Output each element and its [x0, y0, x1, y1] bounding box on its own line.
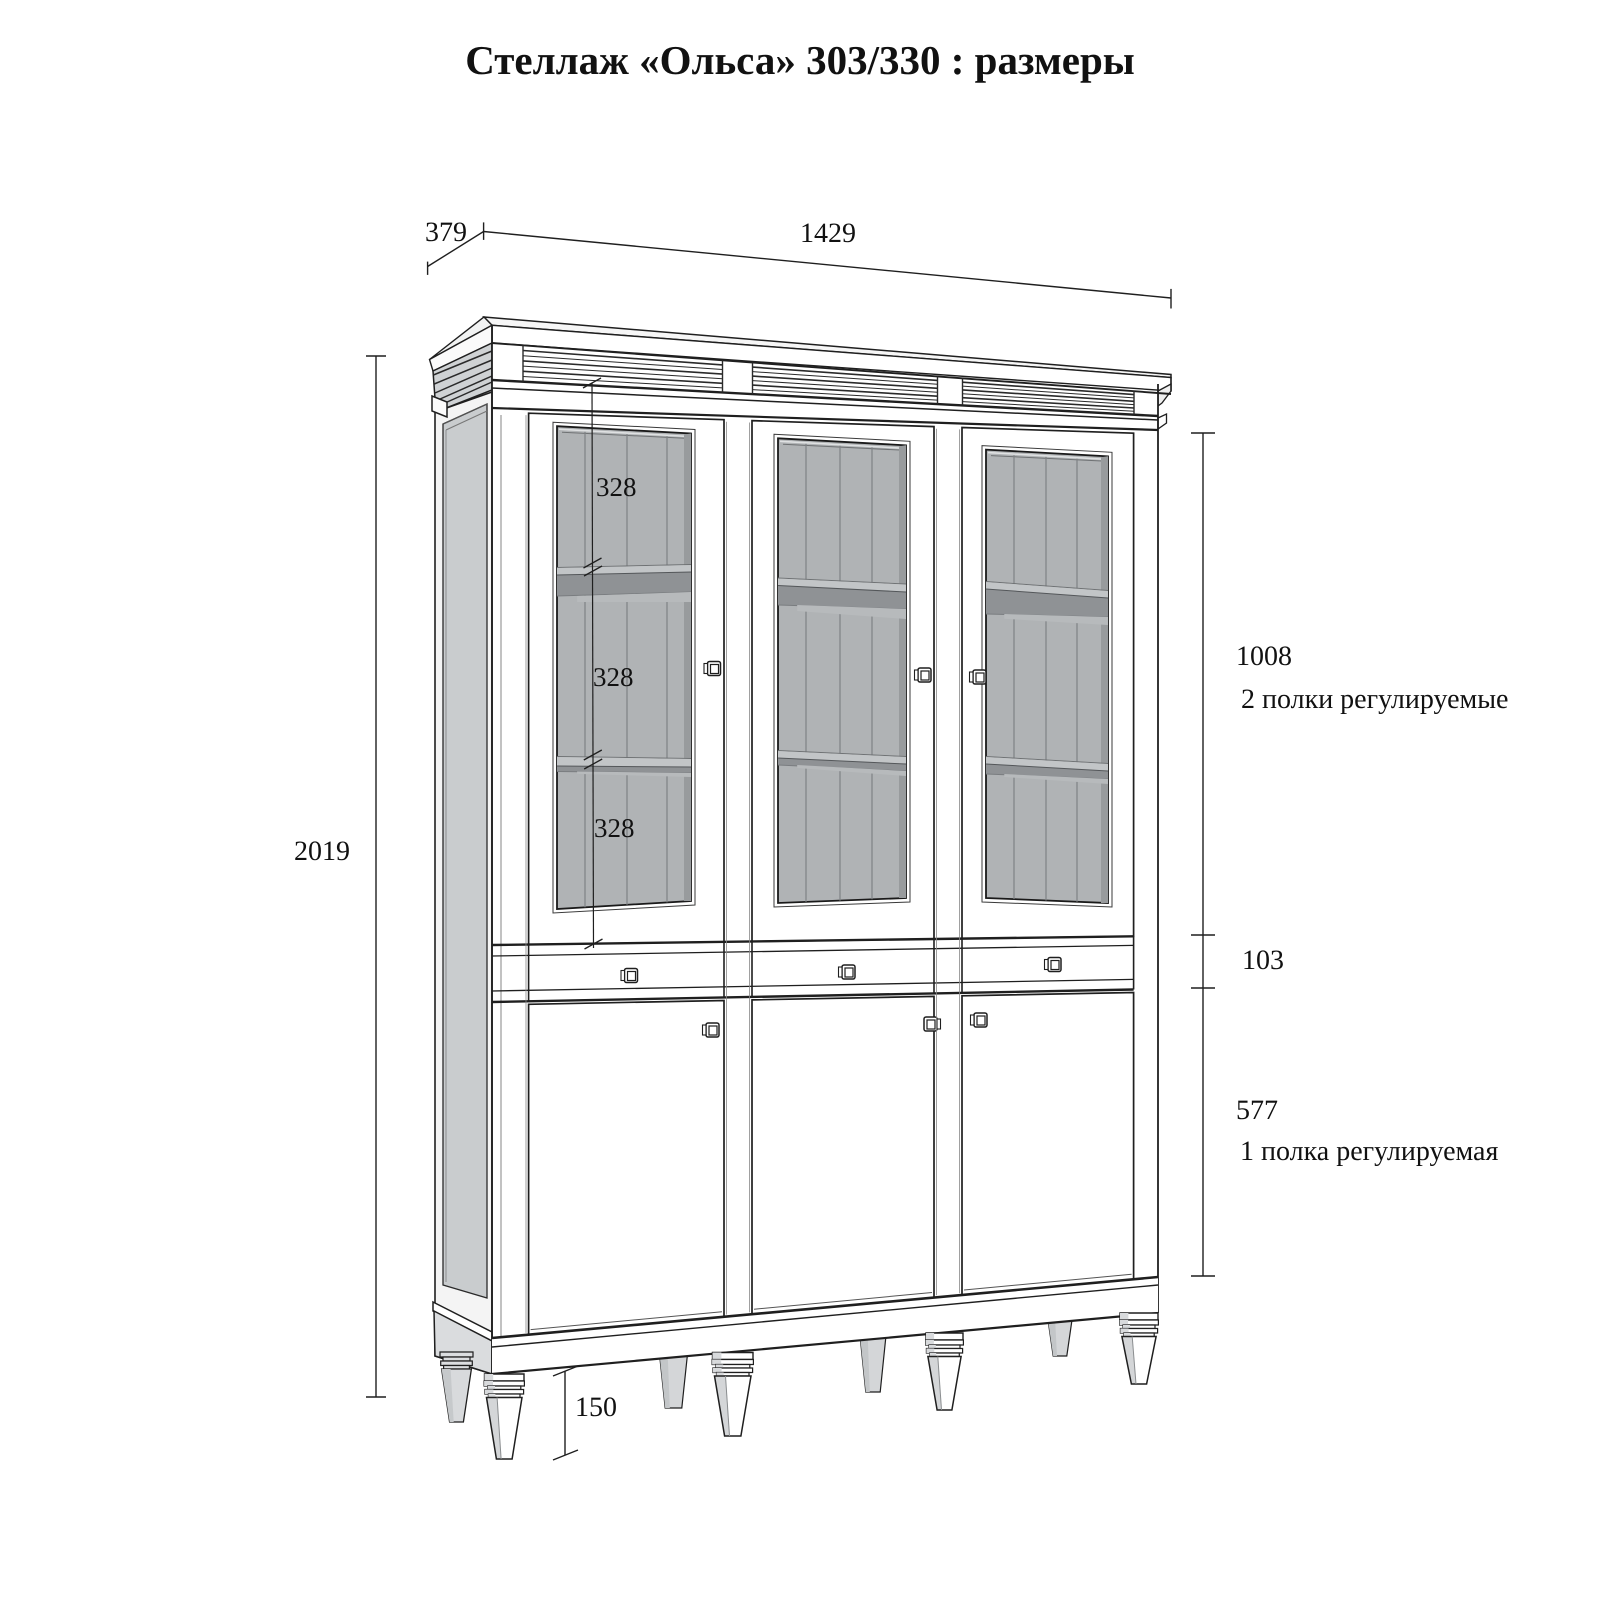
svg-text:150: 150	[575, 1392, 617, 1423]
svg-text:379: 379	[425, 217, 467, 248]
svg-text:103: 103	[1242, 945, 1284, 976]
svg-text:1 полка регулируемая: 1 полка регулируемая	[1240, 1136, 1498, 1167]
svg-text:2 полки регулируемые: 2 полки регулируемые	[1241, 684, 1508, 715]
svg-text:Стеллаж «Ольса» 303/330 : разм: Стеллаж «Ольса» 303/330 : размеры	[465, 37, 1135, 83]
svg-text:1008: 1008	[1236, 641, 1292, 672]
svg-text:328: 328	[593, 662, 634, 692]
svg-text:328: 328	[596, 472, 637, 502]
svg-text:328: 328	[594, 813, 635, 843]
svg-text:2019: 2019	[294, 836, 350, 867]
svg-text:1429: 1429	[800, 218, 856, 249]
svg-text:577: 577	[1236, 1095, 1278, 1126]
